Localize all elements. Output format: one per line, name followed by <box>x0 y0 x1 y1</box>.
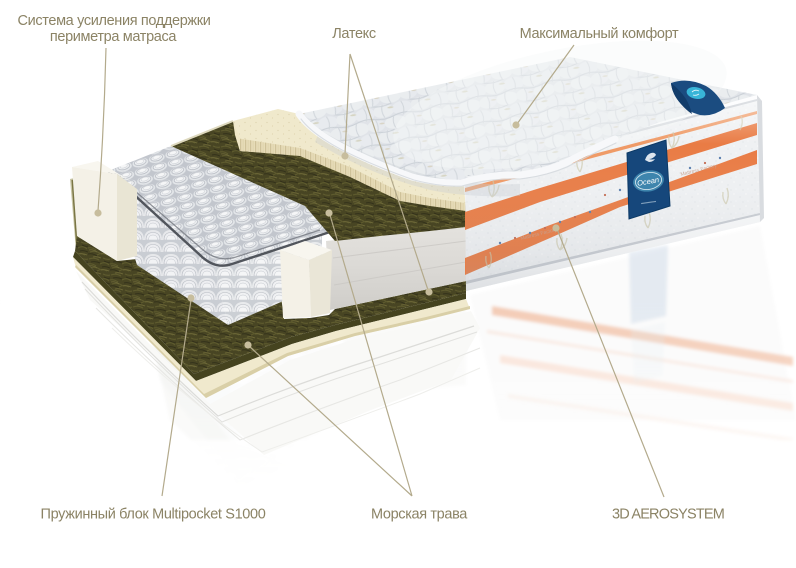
svg-text:Морская трава: Морская трава <box>371 507 468 523</box>
svg-text:Максимальный комфорт: Максимальный комфорт <box>520 26 679 42</box>
svg-text:Латекс: Латекс <box>332 26 376 42</box>
svg-text:Система усиления поддержки: Система усиления поддержки <box>17 13 210 29</box>
svg-text:периметра матраса: периметра матраса <box>50 29 178 45</box>
svg-text:Пружинный блок Multipocket S10: Пружинный блок Multipocket S1000 <box>41 507 266 523</box>
svg-text:3D AEROSYSTEM: 3D AEROSYSTEM <box>612 507 724 523</box>
